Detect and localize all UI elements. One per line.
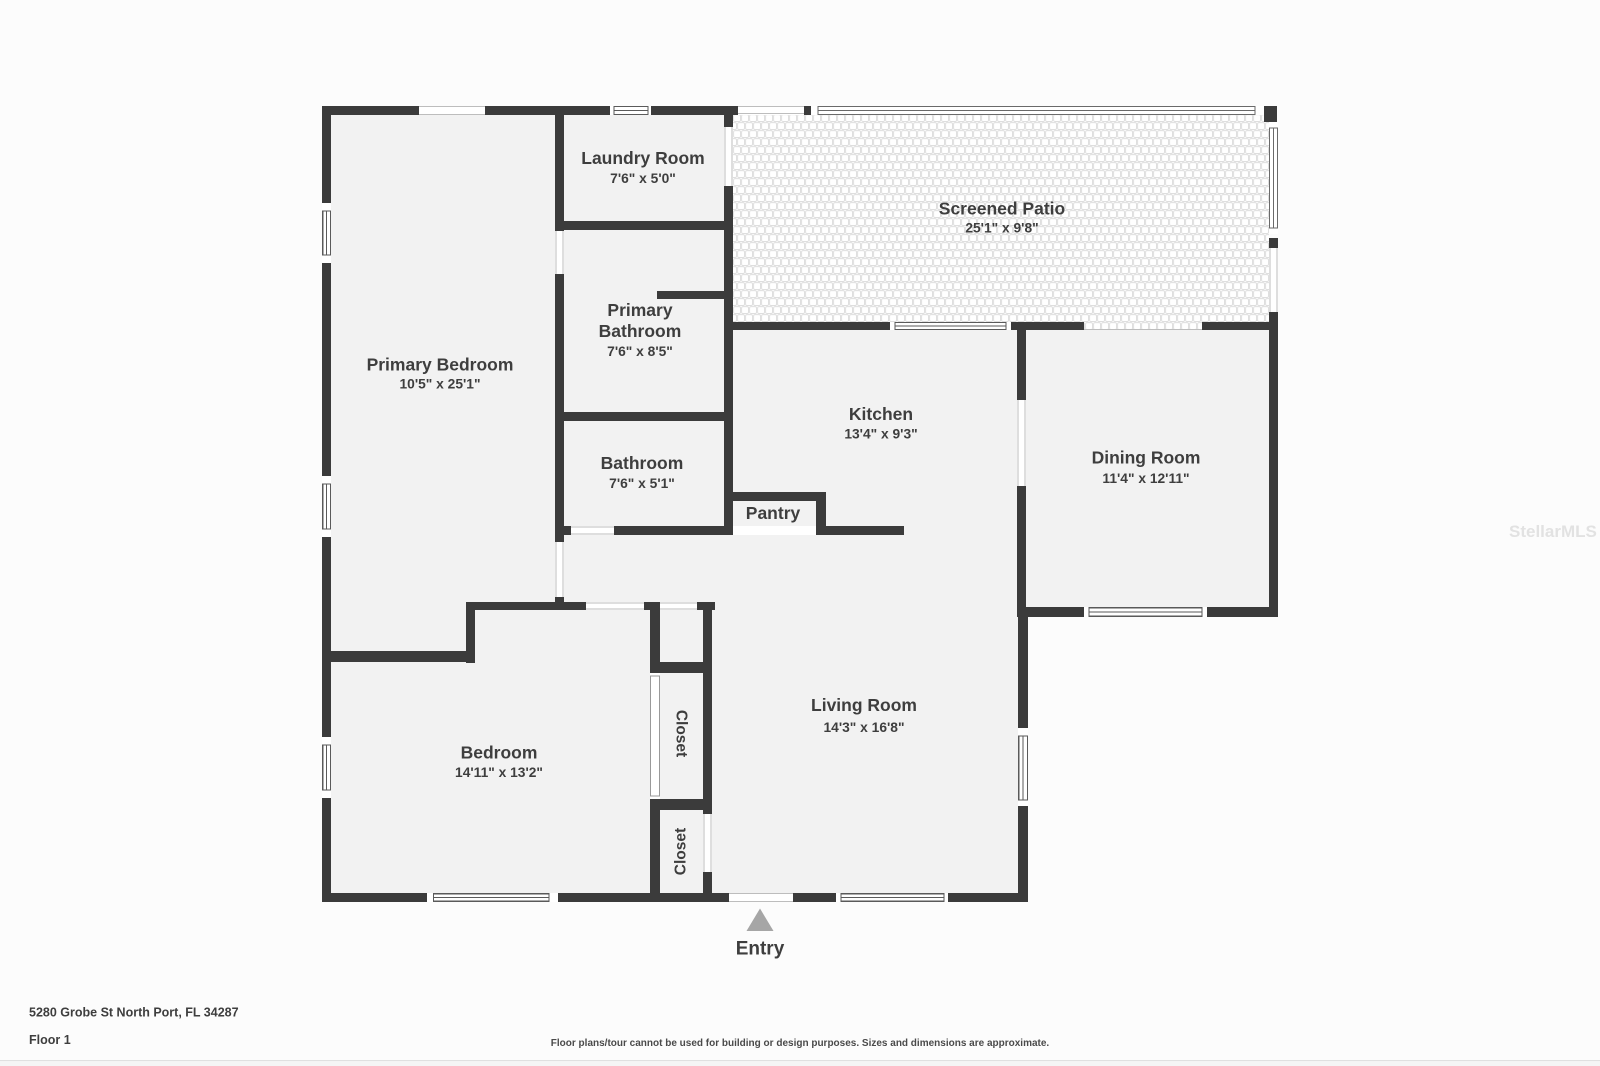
svg-text:StellarMLS: StellarMLS (1509, 522, 1597, 541)
svg-text:Pantry: Pantry (746, 503, 801, 523)
svg-text:Floor plans/tour cannot be use: Floor plans/tour cannot be used for buil… (551, 1038, 1050, 1049)
svg-text:13'4" x 9'3": 13'4" x 9'3" (844, 427, 917, 442)
svg-text:Screened Patio: Screened Patio (939, 199, 1065, 219)
svg-text:10'5" x 25'1": 10'5" x 25'1" (399, 377, 480, 392)
svg-text:Bathroom: Bathroom (599, 321, 682, 341)
svg-text:Floor 1: Floor 1 (29, 1033, 71, 1047)
svg-text:Bedroom: Bedroom (461, 743, 538, 763)
svg-text:Laundry Room: Laundry Room (581, 148, 704, 168)
svg-text:7'6" x 8'5": 7'6" x 8'5" (607, 344, 673, 359)
svg-text:Closet: Closet (673, 710, 690, 757)
svg-text:14'11" x 13'2": 14'11" x 13'2" (455, 765, 543, 780)
svg-text:5280 Grobe St North Port, FL 3: 5280 Grobe St North Port, FL 34287 (29, 1006, 239, 1020)
svg-text:Dining Room: Dining Room (1092, 448, 1201, 468)
svg-text:Living Room: Living Room (811, 695, 917, 715)
svg-text:25'1" x 9'8": 25'1" x 9'8" (965, 221, 1038, 236)
svg-text:Entry: Entry (736, 939, 785, 960)
svg-text:Kitchen: Kitchen (849, 404, 913, 424)
svg-text:Closet: Closet (673, 828, 690, 875)
svg-text:Primary Bedroom: Primary Bedroom (367, 355, 514, 375)
svg-text:7'6" x 5'0": 7'6" x 5'0" (610, 171, 676, 186)
svg-text:7'6" x 5'1": 7'6" x 5'1" (609, 476, 675, 491)
svg-text:11'4" x 12'11": 11'4" x 12'11" (1102, 471, 1189, 486)
svg-text:Bathroom: Bathroom (601, 453, 684, 473)
svg-text:Primary: Primary (607, 300, 672, 320)
svg-text:14'3" x 16'8": 14'3" x 16'8" (823, 720, 904, 735)
